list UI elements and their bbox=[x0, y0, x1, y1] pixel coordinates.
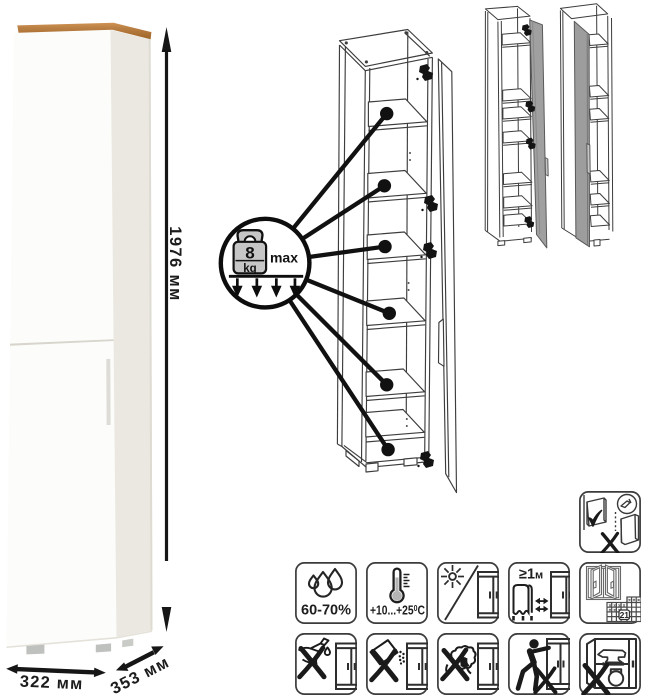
svg-text:1976 мм: 1976 мм bbox=[166, 226, 184, 302]
svg-text:60-70%: 60-70% bbox=[301, 603, 351, 619]
svg-text:322 мм: 322 мм bbox=[19, 673, 83, 694]
svg-text:8: 8 bbox=[245, 244, 254, 263]
svg-text:+10...+250С: +10...+250С bbox=[370, 603, 425, 618]
svg-text:21: 21 bbox=[620, 610, 630, 620]
svg-text:max: max bbox=[270, 250, 298, 266]
svg-text:kg: kg bbox=[243, 263, 256, 275]
svg-text:≥1м: ≥1м bbox=[519, 567, 543, 583]
